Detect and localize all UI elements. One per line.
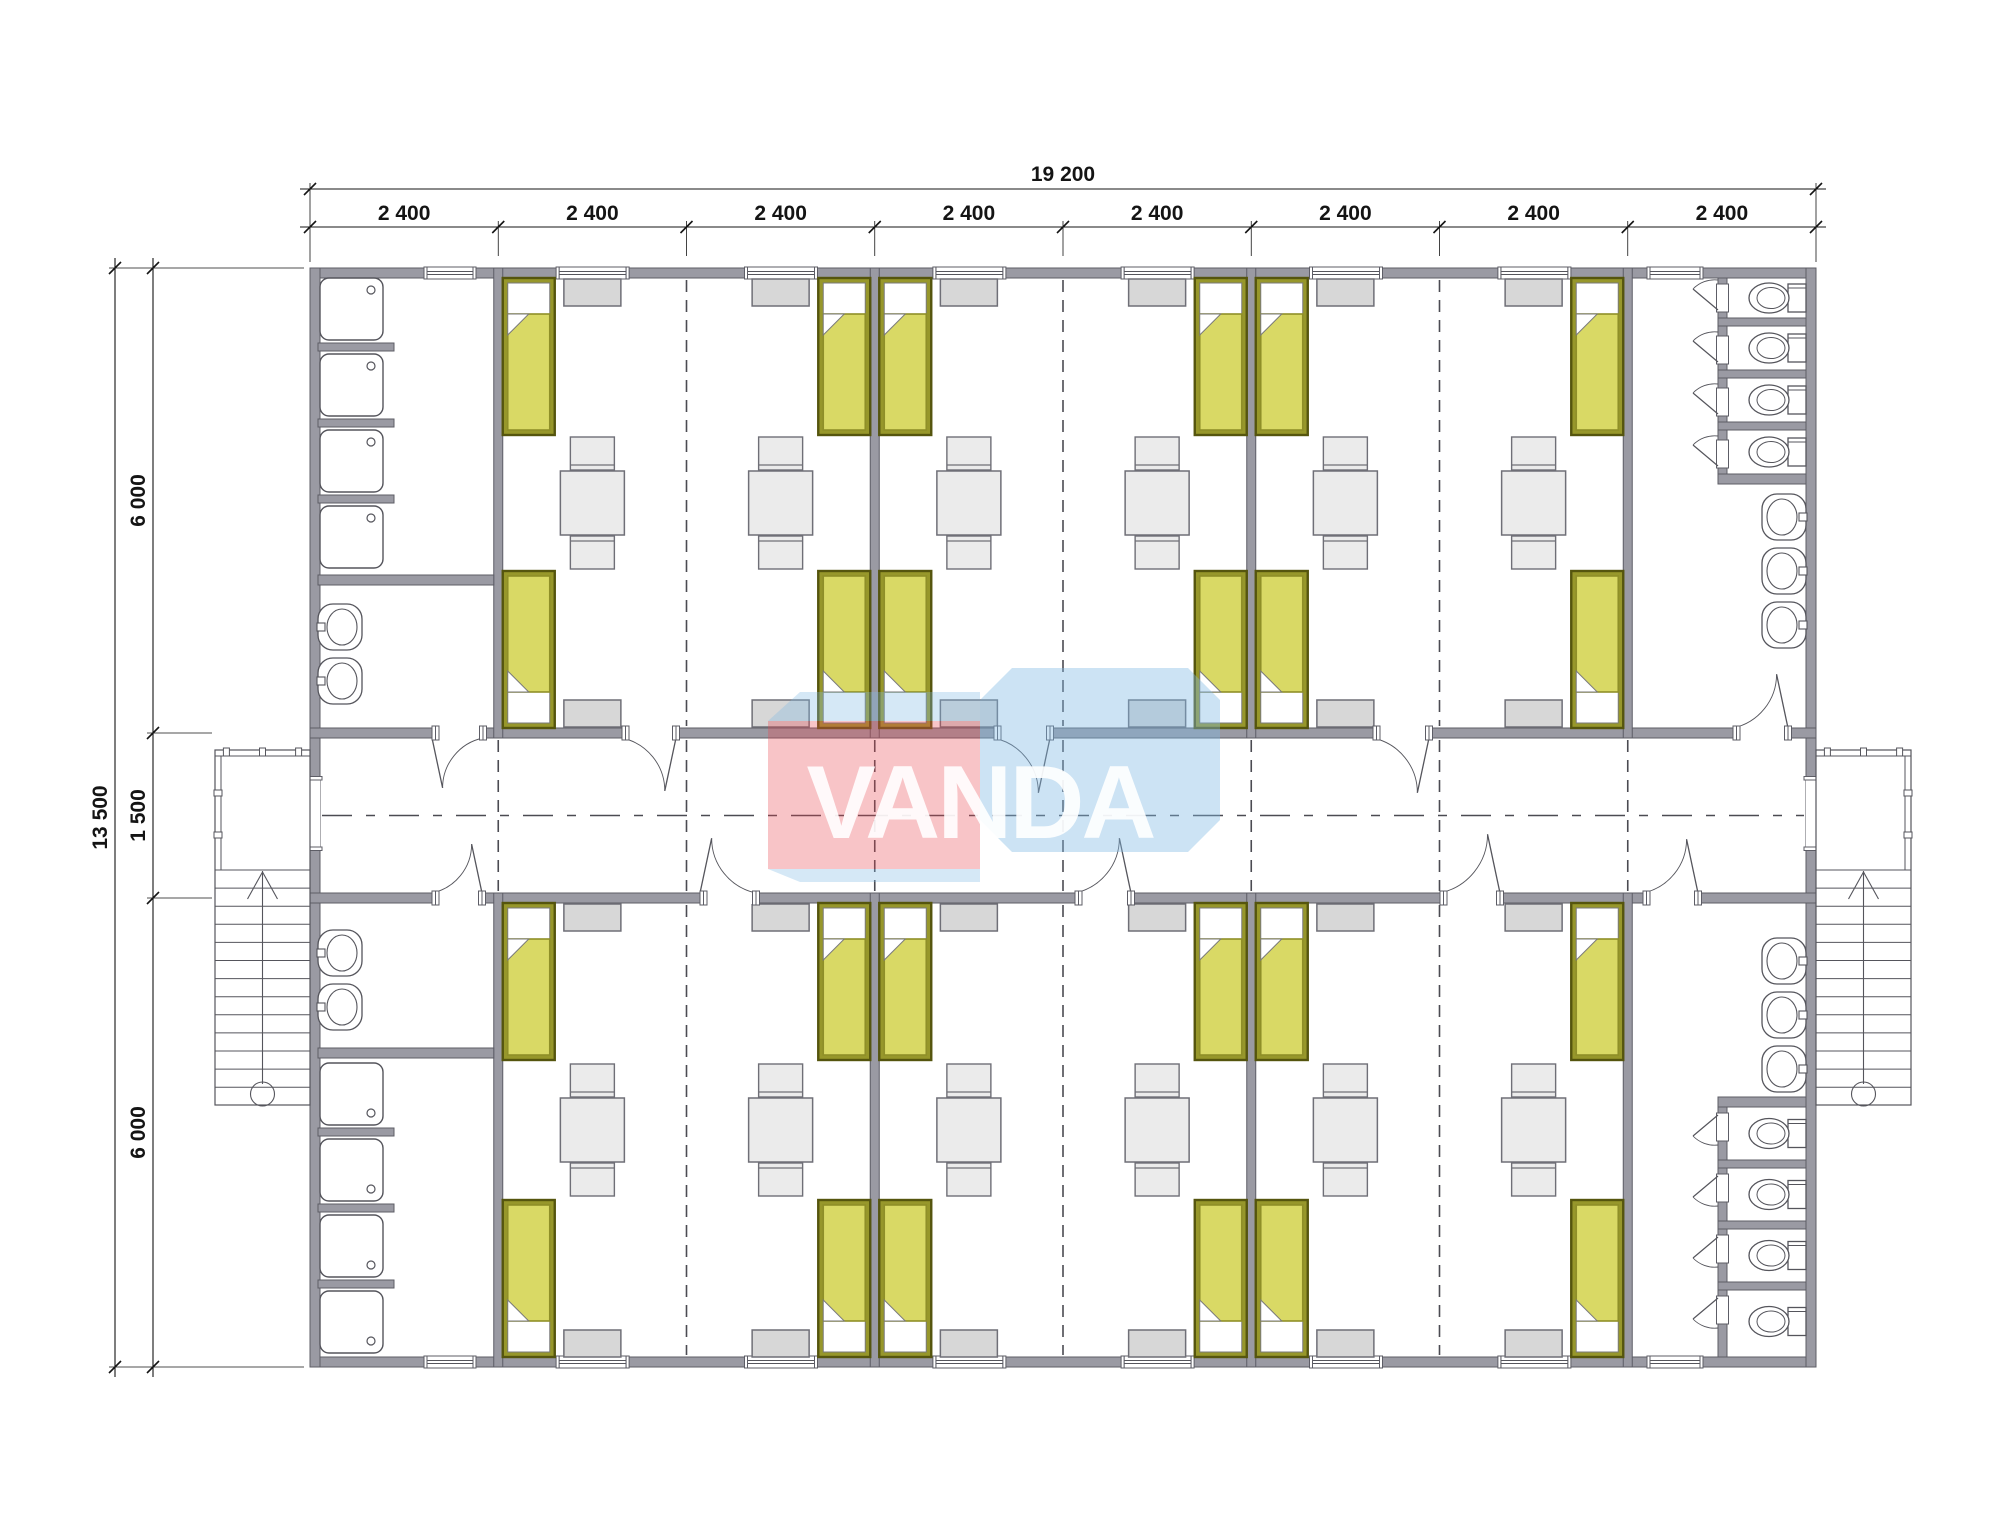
- stall-door-leaf: [1693, 393, 1718, 414]
- shower: [320, 506, 383, 568]
- shower: [320, 278, 383, 340]
- door-swing-arc: [1733, 674, 1777, 728]
- sink-tap: [317, 1003, 325, 1011]
- door-jamb: [1426, 726, 1430, 740]
- locker: [564, 1330, 621, 1357]
- shower: [320, 1139, 383, 1201]
- table-group: [560, 471, 624, 535]
- stub-wall: [1718, 1160, 1806, 1168]
- stall-door-leaf: [1693, 1176, 1718, 1197]
- bed-blanket: [884, 576, 926, 692]
- window-opening: [1313, 267, 1380, 279]
- railing-post: [1824, 748, 1830, 756]
- shower-drain: [367, 286, 375, 294]
- stub-wall: [318, 1128, 394, 1136]
- outer-wall-bottom: [310, 1357, 1816, 1367]
- window-jamb: [933, 267, 936, 279]
- chair: [1135, 536, 1179, 569]
- stub-wall: [318, 1204, 394, 1212]
- door-jamb: [1733, 726, 1737, 740]
- dim-label-top-segment: 2 400: [566, 202, 619, 225]
- dim-label-top-total: 19 200: [1031, 163, 1095, 186]
- window-jamb: [626, 1356, 629, 1368]
- locker: [564, 904, 621, 931]
- door-jamb: [1788, 726, 1792, 740]
- railing-post: [223, 748, 229, 756]
- stall-door: [1693, 1176, 1718, 1206]
- window: [1498, 1356, 1571, 1368]
- door-jamb: [480, 726, 484, 740]
- shower: [320, 354, 383, 416]
- door-jamb: [1075, 891, 1079, 905]
- table-group: [749, 1098, 813, 1162]
- window-opening: [559, 1356, 626, 1368]
- chair: [1512, 437, 1556, 470]
- table: [937, 471, 1001, 535]
- chair: [759, 536, 803, 569]
- door-jamb: [1128, 891, 1132, 905]
- locker: [1317, 700, 1374, 727]
- table: [1502, 471, 1566, 535]
- door-opening: [700, 892, 756, 904]
- bed: [1571, 1200, 1623, 1357]
- porch-stairs: [1816, 748, 1912, 1106]
- door-jamb: [1079, 891, 1083, 905]
- window: [424, 267, 476, 279]
- chair: [570, 437, 614, 470]
- stall-door: [1693, 1237, 1718, 1267]
- chair: [1135, 437, 1179, 470]
- window-jamb: [1647, 267, 1650, 279]
- sink-tap: [317, 623, 325, 631]
- sink: [1762, 494, 1807, 540]
- chair: [1323, 1064, 1367, 1097]
- door-leaf: [1687, 839, 1698, 893]
- chair: [759, 1163, 803, 1196]
- locker: [1129, 904, 1186, 931]
- stall-door-arc: [1693, 1136, 1718, 1145]
- window: [933, 267, 1006, 279]
- locker: [1129, 279, 1186, 306]
- door-jamb: [436, 891, 440, 905]
- window-jamb: [1121, 267, 1124, 279]
- bed-blanket: [1261, 1205, 1303, 1321]
- door-jamb: [1373, 726, 1377, 740]
- door-swing-arc: [622, 738, 665, 791]
- window: [1647, 1356, 1703, 1368]
- sink-tap: [1799, 513, 1807, 521]
- chair: [947, 437, 991, 470]
- partition-wall-bottom-wing: [1623, 893, 1632, 1367]
- bed-blanket: [508, 576, 550, 692]
- stub-wall: [1718, 422, 1806, 430]
- window-opening: [427, 1356, 473, 1368]
- locker: [752, 279, 809, 306]
- shower: [320, 1215, 383, 1277]
- locker: [1505, 1330, 1562, 1357]
- table-group: [749, 471, 813, 535]
- door: [1373, 727, 1429, 793]
- outer-wall-top: [310, 268, 1816, 278]
- window-opening: [1501, 267, 1568, 279]
- shower-drain: [367, 1337, 375, 1345]
- bed: [1256, 903, 1308, 1060]
- stall-door-arc: [1693, 1197, 1718, 1206]
- floor-plan-page: 19 2002 4002 4002 4002 4002 4002 4002 40…: [0, 0, 2000, 1539]
- stall-door: [1693, 1298, 1718, 1328]
- dim-top: 19 2002 4002 4002 4002 4002 4002 4002 40…: [300, 163, 1826, 262]
- bed: [1195, 1200, 1247, 1357]
- stall-door-arc: [1693, 280, 1718, 289]
- table: [1313, 471, 1377, 535]
- table-group: [1313, 1098, 1377, 1162]
- door-swing-arc: [443, 738, 483, 788]
- door-jamb: [482, 891, 486, 905]
- window-jamb: [745, 1356, 748, 1368]
- sink-tap: [317, 677, 325, 685]
- bed: [879, 1200, 931, 1357]
- sink: [1762, 602, 1807, 648]
- chair: [947, 1064, 991, 1097]
- locker: [1505, 700, 1562, 727]
- floor-plan-drawing: 19 2002 4002 4002 4002 4002 4002 4002 40…: [0, 0, 2000, 1539]
- bed-blanket: [1576, 576, 1618, 692]
- door-swing-arc: [1373, 738, 1417, 793]
- window-jamb: [1310, 1356, 1313, 1368]
- stall-door-arc: [1693, 1319, 1718, 1328]
- chair: [1135, 1163, 1179, 1196]
- stall-door-opening: [1717, 1174, 1729, 1202]
- bed-blanket: [823, 1205, 865, 1321]
- sink-tap: [1799, 1065, 1807, 1073]
- stall-door-opening: [1717, 388, 1729, 416]
- table: [1502, 1098, 1566, 1162]
- window-jamb: [815, 1356, 818, 1368]
- bed-blanket: [1200, 576, 1242, 692]
- sink: [317, 930, 362, 976]
- railing-post: [1861, 748, 1867, 756]
- table-group: [1313, 471, 1377, 535]
- door-jamb: [483, 726, 487, 740]
- chair: [570, 536, 614, 569]
- window-opening: [936, 1356, 1003, 1368]
- dim-label-left-segment: 6 000: [127, 474, 150, 527]
- bed-blanket: [1200, 314, 1242, 430]
- stall-door-opening: [1717, 1113, 1729, 1141]
- door-jamb: [1643, 891, 1647, 905]
- door-jamb: [626, 726, 630, 740]
- stall-door-opening: [1717, 284, 1729, 312]
- window: [1121, 1356, 1194, 1368]
- window-jamb: [1003, 267, 1006, 279]
- stall-door-leaf: [1693, 341, 1718, 362]
- sink: [317, 658, 362, 704]
- table: [560, 1098, 624, 1162]
- railing-post: [214, 832, 222, 838]
- door-leaf: [700, 838, 712, 893]
- door: [1643, 839, 1698, 904]
- sink: [317, 604, 362, 650]
- stall-door-opening: [1717, 1296, 1729, 1324]
- chair: [570, 1163, 614, 1196]
- window: [745, 1356, 818, 1368]
- window: [1310, 1356, 1383, 1368]
- table-group: [1125, 471, 1189, 535]
- partition-wall-bottom-wing: [870, 893, 879, 1367]
- door-opening: [1373, 727, 1429, 739]
- window-opening: [748, 267, 815, 279]
- locker: [564, 279, 621, 306]
- shower-drain: [367, 1261, 375, 1269]
- stall-door-leaf: [1693, 1115, 1718, 1136]
- locker: [940, 279, 997, 306]
- shower-drain: [367, 1185, 375, 1193]
- stall-door-leaf: [1693, 445, 1718, 466]
- door-jamb: [1647, 891, 1651, 905]
- chair: [1323, 1163, 1367, 1196]
- bed: [879, 278, 931, 435]
- dim-label-top-segment: 2 400: [1507, 202, 1560, 225]
- bed-blanket: [1576, 1205, 1618, 1321]
- dim-label-top-segment: 2 400: [378, 202, 431, 225]
- window: [556, 1356, 629, 1368]
- bed: [879, 903, 931, 1060]
- shower-drain: [367, 1109, 375, 1117]
- window-opening: [1124, 267, 1191, 279]
- sink: [1762, 1046, 1807, 1092]
- door-swing-arc: [432, 844, 472, 893]
- window-opening: [1650, 267, 1700, 279]
- door-opening: [1075, 892, 1131, 904]
- window-jamb: [1498, 267, 1501, 279]
- stub-wall: [1718, 1282, 1806, 1290]
- door-jamb: [479, 891, 483, 905]
- bed: [1256, 571, 1308, 728]
- door-jamb: [1500, 891, 1504, 905]
- door-leaf: [432, 738, 443, 788]
- window: [1498, 267, 1571, 279]
- table-group: [560, 1098, 624, 1162]
- chair: [1512, 1163, 1556, 1196]
- door: [1733, 674, 1788, 739]
- table-group: [1125, 1098, 1189, 1162]
- sink: [1762, 938, 1807, 984]
- dim-label-top-segment: 2 400: [1319, 202, 1372, 225]
- table: [1125, 1098, 1189, 1162]
- window: [556, 267, 629, 279]
- bed-blanket: [1261, 939, 1303, 1055]
- locker: [1505, 904, 1562, 931]
- stub-wall: [318, 575, 494, 585]
- stall-door-arc: [1693, 1258, 1718, 1267]
- door: [1440, 834, 1500, 904]
- window: [1647, 267, 1703, 279]
- stall-door-leaf: [1693, 1237, 1718, 1258]
- door-swing-arc: [1643, 839, 1687, 893]
- dim-label-top-segment: 2 400: [943, 202, 996, 225]
- chair: [1135, 1064, 1179, 1097]
- dim-label-top-segment: 2 400: [1131, 202, 1184, 225]
- door-jamb: [1497, 891, 1501, 905]
- sink-tap: [1799, 621, 1807, 629]
- window-jamb: [424, 267, 427, 279]
- bed: [1195, 903, 1247, 1060]
- dim-label-top-segment: 2 400: [754, 202, 807, 225]
- bed-blanket: [1261, 314, 1303, 430]
- chair: [759, 1064, 803, 1097]
- door-opening: [310, 780, 320, 847]
- bed-blanket: [1200, 1205, 1242, 1321]
- window-opening: [559, 267, 626, 279]
- bed: [818, 1200, 870, 1357]
- stub-wall: [1718, 370, 1806, 378]
- window-jamb: [473, 267, 476, 279]
- stall-door-leaf: [1693, 1298, 1718, 1319]
- stall-door-arc: [1693, 436, 1718, 445]
- locker: [1505, 279, 1562, 306]
- window-jamb: [745, 267, 748, 279]
- bed-blanket: [823, 939, 865, 1055]
- window-opening: [427, 267, 473, 279]
- door-jamb: [756, 891, 760, 905]
- locker: [752, 1330, 809, 1357]
- table-group: [937, 471, 1001, 535]
- locker: [752, 904, 809, 931]
- watermark-box-bottom: [768, 869, 980, 882]
- door-jamb: [432, 726, 436, 740]
- chair: [947, 536, 991, 569]
- table: [749, 1098, 813, 1162]
- bed: [503, 903, 555, 1060]
- door-jamb: [1785, 726, 1789, 740]
- door-jamb: [1737, 726, 1741, 740]
- toilet: [1749, 1307, 1806, 1337]
- bed-blanket: [823, 576, 865, 692]
- chair: [1512, 1064, 1556, 1097]
- toilet: [1749, 1119, 1806, 1149]
- stall-door: [1693, 1115, 1718, 1145]
- shower: [320, 430, 383, 492]
- bed-blanket: [1576, 939, 1618, 1055]
- window-jamb: [556, 1356, 559, 1368]
- door-jamb: [1377, 726, 1381, 740]
- sink: [1762, 548, 1807, 594]
- door-jamb: [1444, 891, 1448, 905]
- door-jamb: [676, 726, 680, 740]
- bed: [1571, 278, 1623, 435]
- stall-door-arc: [1693, 384, 1718, 393]
- window-jamb: [626, 267, 629, 279]
- door-jamb: [1695, 891, 1699, 905]
- table: [749, 471, 813, 535]
- stub-wall: [318, 419, 394, 427]
- toilet: [1749, 1241, 1806, 1271]
- window-jamb: [1310, 267, 1313, 279]
- stall-door-opening: [1717, 440, 1729, 468]
- chair: [570, 1064, 614, 1097]
- door: [432, 727, 483, 788]
- toilet: [1749, 385, 1806, 415]
- stall-door: [1693, 280, 1718, 310]
- bed-blanket: [508, 939, 550, 1055]
- door-leaf: [1777, 674, 1788, 728]
- window-opening: [748, 1356, 815, 1368]
- watermark-box-top: [768, 692, 980, 721]
- locker: [564, 700, 621, 727]
- table-group: [1502, 471, 1566, 535]
- railing-post: [260, 748, 266, 756]
- chair: [947, 1163, 991, 1196]
- bed: [503, 278, 555, 435]
- railing-post: [1904, 832, 1912, 838]
- window: [933, 1356, 1006, 1368]
- chair: [1323, 536, 1367, 569]
- stall-door: [1693, 436, 1718, 466]
- window: [1121, 267, 1194, 279]
- window-opening: [1313, 1356, 1380, 1368]
- bed: [1571, 571, 1623, 728]
- door-leaf: [1488, 834, 1500, 893]
- window-jamb: [1700, 267, 1703, 279]
- table-group: [937, 1098, 1001, 1162]
- door-swing-arc: [1440, 834, 1488, 893]
- partition-wall-top-wing: [870, 268, 879, 738]
- chair: [759, 437, 803, 470]
- bed-blanket: [884, 939, 926, 1055]
- locker: [1317, 1330, 1374, 1357]
- stall-door-leaf: [1693, 289, 1718, 310]
- door-jamb: [1440, 891, 1444, 905]
- door-opening: [1643, 892, 1698, 904]
- bed-blanket: [1200, 939, 1242, 1055]
- window-jamb: [1380, 1356, 1383, 1368]
- window-jamb: [1647, 1356, 1650, 1368]
- door-leaf: [665, 738, 676, 791]
- door-opening: [1733, 727, 1788, 739]
- sink-tap: [1799, 957, 1807, 965]
- door-jamb: [673, 726, 677, 740]
- door-opening: [622, 727, 676, 739]
- window-opening: [1501, 1356, 1568, 1368]
- partition-wall-bottom-wing: [494, 893, 503, 1367]
- bed: [503, 1200, 555, 1357]
- dim-label-left-segment: 6 000: [127, 1106, 150, 1159]
- sink-tap: [317, 949, 325, 957]
- window-jamb: [815, 267, 818, 279]
- locker: [940, 1330, 997, 1357]
- door-jamb: [432, 891, 436, 905]
- window-opening: [1124, 1356, 1191, 1368]
- bed-blanket: [508, 1205, 550, 1321]
- window-jamb: [1121, 1356, 1124, 1368]
- sink-tap: [1799, 567, 1807, 575]
- window-jamb: [1380, 267, 1383, 279]
- toilet: [1749, 283, 1806, 313]
- door-jamb: [704, 891, 708, 905]
- stall-door-opening: [1717, 336, 1729, 364]
- window-jamb: [1498, 1356, 1501, 1368]
- locker: [1129, 1330, 1186, 1357]
- dim-label-top-segment: 2 400: [1696, 202, 1749, 225]
- window-jamb: [556, 267, 559, 279]
- bed: [1256, 278, 1308, 435]
- bed-blanket: [1261, 576, 1303, 692]
- door-jamb: [700, 891, 704, 905]
- dim-label-left-segment: 1 500: [127, 789, 150, 842]
- window-jamb: [1003, 1356, 1006, 1368]
- toilet: [1749, 333, 1806, 363]
- partition-wall-top-wing: [1247, 268, 1256, 738]
